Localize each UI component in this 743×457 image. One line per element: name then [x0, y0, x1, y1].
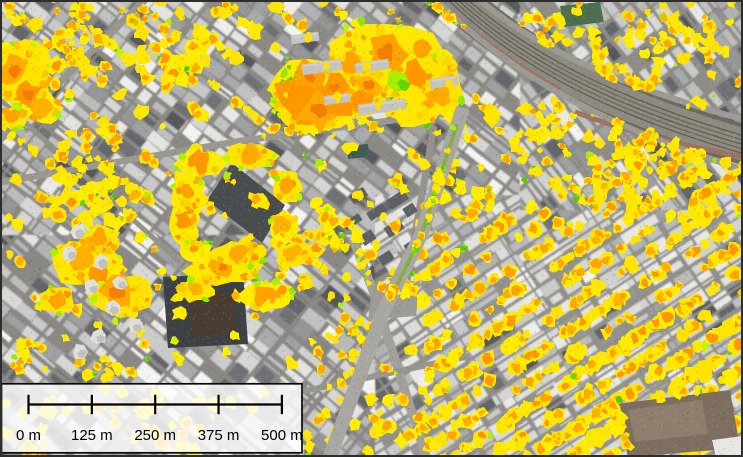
svg-text:0 m: 0 m: [16, 427, 41, 444]
svg-text:125 m: 125 m: [71, 427, 113, 444]
svg-text:375 m: 375 m: [198, 427, 240, 444]
svg-text:250 m: 250 m: [134, 427, 176, 444]
svg-text:500 m: 500 m: [261, 427, 303, 444]
